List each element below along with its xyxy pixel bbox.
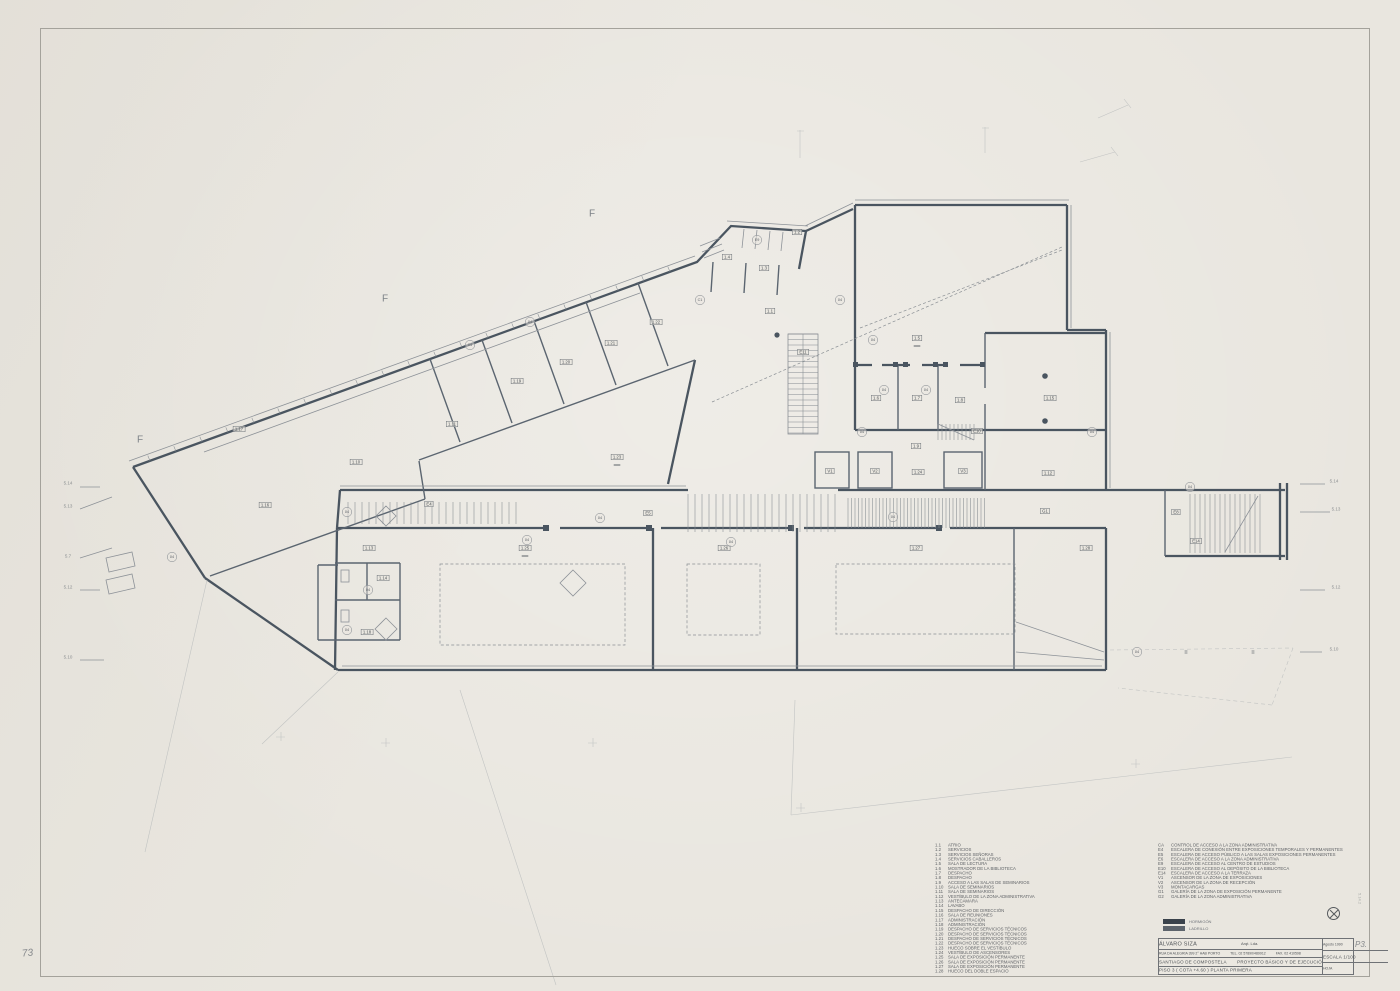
room-label: E8 <box>1171 509 1180 515</box>
code-circle-label: 04 <box>1087 427 1097 437</box>
room-label-hatch <box>522 554 529 557</box>
code-circle-label: 04 <box>342 507 352 517</box>
architect-suffix: Arqt. Lda. <box>1241 942 1258 947</box>
material-item: HORMIGÓN <box>1163 918 1234 925</box>
dimension-edge-label: 5.14 <box>64 481 73 486</box>
room-legend-left: 1.1ATRIO1.2SERVICIOS1.3SERVICIOS SEÑORAS… <box>935 843 1155 974</box>
dimension-edge-label: 5.12 <box>1332 585 1341 590</box>
room-label: 1.13 <box>363 545 375 551</box>
legend-left-list: 1.1ATRIO1.2SERVICIOS1.3SERVICIOS SEÑORAS… <box>935 843 1155 974</box>
material-swatch <box>1163 919 1185 924</box>
hatch-tick-glyph: ≣ <box>1251 649 1255 655</box>
code-circle-label: 04 <box>879 385 889 395</box>
legend-right-list: CACONTROL DE ACCESO A LA ZONA ADMINISTRA… <box>1158 843 1368 899</box>
room-label: V2 <box>870 468 879 474</box>
room-label: 1.8 <box>955 397 965 403</box>
material-name: LADRILLO <box>1189 926 1208 931</box>
architect-name: ÁLVARO SIZA <box>1159 941 1197 947</box>
code-circle-label: 04 <box>1185 482 1195 492</box>
code-circle-label: 04 <box>888 512 898 522</box>
section-marker: F <box>589 209 595 220</box>
room-label: 1.12 <box>1042 470 1054 476</box>
dimension-edge-label: 5.13 <box>64 504 73 509</box>
room-label: V1 <box>825 468 834 474</box>
room-label: 1.24 <box>912 469 924 475</box>
room-label: 1.21 <box>605 340 617 346</box>
room-label: V3 <box>958 468 967 474</box>
room-label: E10 <box>971 428 983 434</box>
code-circle-label: C1 <box>695 295 705 305</box>
code-circle-label: 04 <box>342 625 352 635</box>
margin-note: 5.14.2 <box>1358 893 1363 904</box>
material-name: HORMIGÓN <box>1189 919 1211 924</box>
dimension-edge-label: 5.10 <box>64 655 73 660</box>
section-marker: F <box>137 435 143 446</box>
corner-page-number: 73 <box>21 947 33 959</box>
room-label: 1.27 <box>910 545 922 551</box>
legend-item-label: HUECO DEL DOBLE ESPACIO <box>948 969 1009 974</box>
room-label: 1.3 <box>759 265 769 271</box>
room-label: 1.1 <box>765 308 775 314</box>
room-label: 1.28 <box>1080 545 1092 551</box>
drawing-sheet: 1.21.31.41.1E111.51.61.71.81.151.12E101.… <box>0 0 1400 991</box>
code-circle-label: 04 <box>522 535 532 545</box>
room-label-hatch <box>914 344 921 347</box>
dimension-edge-label: 5.12 <box>64 585 73 590</box>
code-circle-label: 04 <box>465 340 475 350</box>
legend-item-code: G2 <box>1158 894 1171 899</box>
room-label: 1.18 <box>361 629 373 635</box>
materials-list: HORMIGÓNLADRILLO <box>1163 918 1234 932</box>
room-label: E11 <box>797 349 808 355</box>
legend-item: 1.28HUECO DEL DOBLE ESPACIO <box>935 969 1155 974</box>
lines-dashed <box>440 247 1062 645</box>
column-dot <box>1042 418 1048 424</box>
walls-thick <box>133 205 1287 670</box>
room-label: 1.10 <box>350 459 362 465</box>
stair-treads <box>148 267 1260 553</box>
sheet-title: PISO 3 ( COTA +4.60 ) PLANTA PRIMERA <box>1159 968 1252 973</box>
room-label: 1.23 <box>611 454 623 460</box>
legend-item-code: 1.28 <box>935 969 948 974</box>
code-circle-label: 04 <box>167 552 177 562</box>
room-label: 1.9 <box>911 443 921 449</box>
title-block: ÁLVARO SIZA Arqt. Lda. RUA DA ALEGRIA 39… <box>1158 938 1354 975</box>
room-label: 1.22 <box>650 319 662 325</box>
room-label: 1.6 <box>871 395 881 401</box>
room-label: 1.16 <box>259 502 271 508</box>
room-label: 1.14 <box>377 575 389 581</box>
room-legend-right: CACONTROL DE ACCESO A LA ZONA ADMINISTRA… <box>1158 843 1368 899</box>
code-circle-label: 04 <box>1132 647 1142 657</box>
material-swatch <box>1163 926 1185 931</box>
dimension-edge-label: 5.10 <box>1330 647 1339 652</box>
room-label: E4 <box>424 501 433 507</box>
room-label: 1.5 <box>912 335 922 341</box>
room-label: 1.11 <box>446 421 458 427</box>
legend-item-label: GALERÍA DE LA ZONA ADMINISTRATIVA <box>1171 894 1252 899</box>
code-circle-label: 04 <box>868 335 878 345</box>
date-value: Agosto 1990 <box>1323 943 1343 947</box>
code-circle-label: 04 <box>726 537 736 547</box>
walls-partition <box>210 262 1165 670</box>
room-label: 1.4 <box>722 254 732 260</box>
section-marker: F <box>382 294 388 305</box>
room-label: 1.15 <box>1044 395 1056 401</box>
room-label: 1.7 <box>912 395 922 401</box>
room-label: E14 <box>1190 538 1202 544</box>
column-dot <box>1042 373 1048 379</box>
code-circle-label: 04 <box>595 513 605 523</box>
crossed-circle-stamp <box>1327 907 1340 920</box>
code-circle-label: 04 <box>835 295 845 305</box>
code-circle-label: 04 <box>363 585 373 595</box>
code-circle-label: 04 <box>921 385 931 395</box>
column-dot <box>774 332 779 337</box>
scale-value: ESCALA 1/100 <box>1323 954 1356 959</box>
room-label: 1.25 <box>519 545 531 551</box>
room-label-hatch <box>614 463 621 466</box>
room-label: 1.17 <box>233 426 245 432</box>
code-circle-label: 04 <box>857 427 867 437</box>
dimension-edge-label: 5.13 <box>1332 507 1341 512</box>
room-label: G1 <box>1040 508 1050 514</box>
project-line: SANTIAGO DE COMPOSTELA PROYECTO BÁSICO Y… <box>1159 959 1322 964</box>
code-circle-label: 04 <box>525 317 535 327</box>
room-label: 1.20 <box>560 359 572 365</box>
title-block-main: ÁLVARO SIZA Arqt. Lda. RUA DA ALEGRIA 39… <box>1159 939 1323 974</box>
room-label: 1.2 <box>792 229 802 235</box>
dimension-edge-label: 5.14 <box>1330 479 1339 484</box>
hatch-tick-glyph: ≣ <box>1184 649 1188 655</box>
lines-thin <box>80 200 1330 666</box>
room-label: 1.19 <box>511 378 523 384</box>
room-label: E5 <box>643 510 652 516</box>
architect-address: RUA DA ALEGRIA 399 2° HAB PORTO TEL. 02 … <box>1159 952 1301 956</box>
materials-legend: HORMIGÓNLADRILLO <box>1163 918 1234 932</box>
dimension-edge-label: 5.7 <box>65 554 71 559</box>
legend-item: G2GALERÍA DE LA ZONA ADMINISTRATIVA <box>1158 894 1368 899</box>
material-item: LADRILLO <box>1163 925 1234 932</box>
plate-note: P3. <box>1355 940 1367 949</box>
sheet-number-label: HOJA <box>1323 967 1332 971</box>
code-circle-label: E9 <box>752 235 762 245</box>
